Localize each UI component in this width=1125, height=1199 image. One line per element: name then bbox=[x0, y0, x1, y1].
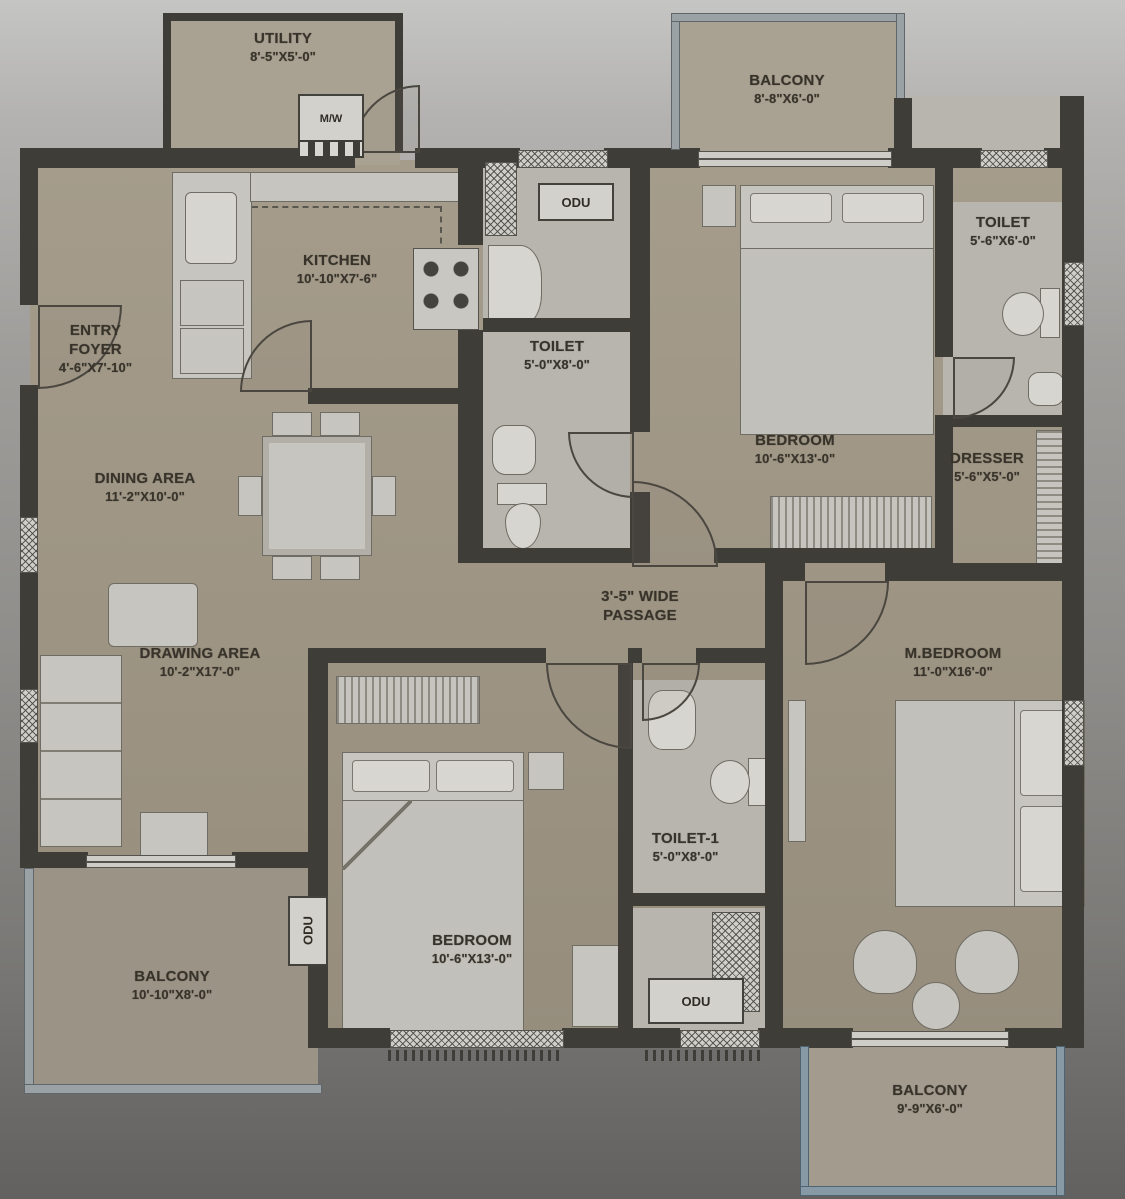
window-top-1 bbox=[518, 150, 608, 168]
room-name: BALCONY bbox=[687, 72, 887, 91]
odu-room-louver bbox=[485, 162, 517, 236]
mbed-blanket bbox=[895, 700, 1015, 907]
window-odu-bottom bbox=[680, 1030, 760, 1048]
room-dims: 10'-10"X8'-0" bbox=[72, 987, 272, 1003]
toilet-1-label: TOILET-1 5'-0"X8'-0" bbox=[608, 830, 763, 865]
kitchen-counter-top bbox=[250, 172, 460, 202]
toilet-1-wc-bowl bbox=[710, 760, 750, 804]
wall-passage-bottom-3 bbox=[696, 648, 783, 663]
mbed-wall-bottom-1 bbox=[783, 1028, 853, 1048]
window-top-2 bbox=[980, 150, 1048, 168]
wall-left-3 bbox=[20, 571, 38, 689]
wall-column-1 bbox=[630, 148, 650, 432]
passage-line1: 3'-5" WIDE bbox=[570, 588, 710, 607]
sliding-door-balcony-br bbox=[851, 1031, 1009, 1047]
armchair bbox=[108, 583, 198, 647]
wall-left-4 bbox=[20, 741, 38, 868]
window-right-2 bbox=[1064, 700, 1084, 766]
round-table bbox=[912, 982, 960, 1030]
toilet-top-right-label: TOILET 5'-6"X6'-0" bbox=[928, 214, 1078, 249]
dresser-label: DRESSER 5'-6"X5'-0" bbox=[912, 450, 1062, 485]
wash-counter bbox=[488, 245, 542, 327]
wall-top-3 bbox=[604, 148, 700, 168]
dining-chair-2 bbox=[320, 412, 360, 436]
microwave-label: M/W bbox=[320, 113, 343, 125]
window-bedroom-bottom bbox=[390, 1030, 564, 1048]
wall-odu-bottom-b2 bbox=[758, 1028, 783, 1048]
side-table-drawing bbox=[140, 812, 208, 858]
balcony-bottom-right-floor bbox=[802, 1046, 1056, 1188]
floor-plan: ODU M/W ODU ODU bbox=[0, 0, 1125, 1199]
room-name: TOILET-1 bbox=[608, 830, 763, 849]
wall-kitchen-right-top bbox=[458, 148, 483, 245]
dining-chair-1 bbox=[272, 412, 312, 436]
odu-label: ODU bbox=[682, 994, 711, 1009]
balcony-top-rail-right bbox=[896, 13, 905, 105]
grill-odu-bottom bbox=[645, 1050, 760, 1061]
room-dims: 8'-8"X6'-0" bbox=[687, 91, 887, 107]
accent-chair-1 bbox=[853, 930, 917, 994]
room-dims: 8'-5"X5'-0" bbox=[183, 49, 383, 65]
room-dims: 10'-6"X13'-0" bbox=[372, 951, 572, 967]
toilet-tr-basin bbox=[1028, 372, 1064, 406]
balcony-bl-rail-left bbox=[24, 868, 34, 1094]
wall-left-1 bbox=[20, 148, 38, 305]
odu-unit-top: ODU bbox=[538, 183, 614, 221]
m-bedroom-label: M.BEDROOM 11'-0"X16'-0" bbox=[853, 645, 1053, 680]
bedroom-top-wardrobe bbox=[770, 496, 932, 550]
dining-chair-4 bbox=[320, 556, 360, 580]
wall-balcony-bl-1 bbox=[20, 852, 88, 868]
balcony-top-rail-left bbox=[671, 13, 680, 150]
utility-wall-left bbox=[163, 13, 171, 153]
room-dims: 11'-0"X16'-0" bbox=[853, 664, 1053, 680]
sofa bbox=[40, 655, 122, 847]
passage-label: 3'-5" WIDE PASSAGE bbox=[570, 588, 710, 626]
kitchen-sink bbox=[185, 192, 237, 264]
accent-chair-2 bbox=[955, 930, 1019, 994]
wall-mbed-top-2 bbox=[885, 563, 1084, 581]
toilet-tr-wc-bowl bbox=[1002, 292, 1044, 336]
bed-top-pillow-2 bbox=[842, 193, 924, 223]
balcony-br-rail-left bbox=[800, 1046, 809, 1195]
counter-dash-line-h bbox=[252, 206, 440, 208]
room-name: TOILET bbox=[928, 214, 1078, 233]
wall-toilet1-odu-divider bbox=[618, 893, 783, 906]
utility-wall-top bbox=[163, 13, 403, 21]
room-name: UTILITY bbox=[183, 30, 383, 49]
kitchen-cabinet bbox=[180, 280, 244, 326]
odu-label: ODU bbox=[562, 195, 591, 210]
odu-unit-bottom: ODU bbox=[648, 978, 744, 1024]
drawing-label: DRAWING AREA 10'-2"X17'-0" bbox=[100, 645, 300, 680]
room-name: BALCONY bbox=[830, 1082, 1030, 1101]
window-right-1 bbox=[1064, 262, 1084, 326]
microwave-grill bbox=[298, 140, 364, 158]
dining-chair-6 bbox=[372, 476, 396, 516]
bedroom-bottom-label: BEDROOM 10'-6"X13'-0" bbox=[372, 932, 572, 967]
balcony-br-rail-right bbox=[1056, 1046, 1065, 1196]
ledge-right-wall bbox=[1060, 96, 1084, 154]
wall-odu-bottom-b1 bbox=[618, 1028, 680, 1048]
room-name: DRAWING AREA bbox=[100, 645, 300, 664]
wall-bedroom-bottom-b1 bbox=[328, 1028, 390, 1048]
wall-bedroomtop-right-2 bbox=[935, 415, 953, 563]
balcony-top-wall-block bbox=[894, 98, 912, 154]
room-dims: 5'-0"X8'-0" bbox=[487, 357, 627, 373]
room-name: BEDROOM bbox=[372, 932, 572, 951]
bed-bottom-pillow-2 bbox=[436, 760, 514, 792]
wall-odu-toilet-divider bbox=[483, 318, 630, 332]
wall-passage-bottom-2 bbox=[628, 648, 642, 663]
microwave-box: M/W bbox=[298, 94, 364, 144]
room-name: DRESSER bbox=[912, 450, 1062, 469]
wall-bedroom-bottom-left bbox=[308, 648, 328, 1048]
ledge-top-right bbox=[902, 96, 1062, 150]
bed-top-blanket bbox=[740, 248, 934, 435]
dining-chair-3 bbox=[272, 556, 312, 580]
wall-passage-top-2 bbox=[714, 548, 935, 563]
balcony-bottom-left-label: BALCONY 10'-10"X8'-0" bbox=[72, 968, 272, 1003]
utility-label: UTILITY 8'-5"X5'-0" bbox=[183, 30, 383, 65]
bed-bottom-pillow-1 bbox=[352, 760, 430, 792]
room-name: M.BEDROOM bbox=[853, 645, 1053, 664]
balcony-top-label: BALCONY 8'-8"X6'-0" bbox=[687, 72, 887, 107]
sliding-door-balcony-top bbox=[698, 151, 892, 167]
room-dims: 10'-10"X7'-6" bbox=[237, 271, 437, 287]
room-name: TOILET bbox=[487, 338, 627, 357]
room-dims: 10'-2"X17'-0" bbox=[100, 664, 300, 680]
mbed-tv-unit bbox=[788, 700, 806, 842]
room-dims: 10'-6"X13'-0" bbox=[695, 451, 895, 467]
grill-bedroom-bottom bbox=[388, 1050, 564, 1061]
bed-bottom-fold-line bbox=[342, 800, 412, 870]
passage-line2: PASSAGE bbox=[570, 607, 710, 626]
room-dims: 4'-6"X7'-10" bbox=[48, 360, 143, 376]
balcony-bl-rail-bottom bbox=[24, 1084, 322, 1094]
room-dims: 9'-9"X6'-0" bbox=[830, 1101, 1030, 1117]
mbed-wall-bottom-2 bbox=[1005, 1028, 1084, 1048]
wall-balcony-bl-2 bbox=[232, 852, 320, 868]
bed-top-pillow-1 bbox=[750, 193, 832, 223]
room-name: KITCHEN bbox=[237, 252, 437, 271]
balcony-top-rail-top bbox=[671, 13, 905, 22]
entry-foyer-label: ENTRY FOYER 4'-6"X7'-10" bbox=[48, 322, 143, 376]
kitchen-label: KITCHEN 10'-10"X7'-6" bbox=[237, 252, 437, 287]
odu-label: ODU bbox=[301, 917, 316, 946]
bedroom-bottom-wardrobe bbox=[336, 676, 480, 724]
wall-mbed-top-1 bbox=[783, 563, 805, 581]
room-name: ENTRY FOYER bbox=[48, 322, 143, 360]
room-dims: 5'-6"X5'-0" bbox=[912, 469, 1062, 485]
sliding-door-balcony-bl bbox=[86, 855, 236, 868]
wall-kitchen-bottom bbox=[308, 388, 460, 404]
window-left-1 bbox=[20, 517, 38, 573]
bed-top-side-table bbox=[702, 185, 736, 227]
room-name: BEDROOM bbox=[695, 432, 895, 451]
balcony-bottom-right-label: BALCONY 9'-9"X6'-0" bbox=[830, 1082, 1030, 1117]
wall-passage-bottom-1 bbox=[308, 648, 546, 663]
toilet-mid-wc-tank bbox=[497, 483, 547, 505]
room-dims: 11'-2"X10'-0" bbox=[45, 489, 245, 505]
bedroom-top-label: BEDROOM 10'-6"X13'-0" bbox=[695, 432, 895, 467]
room-dims: 5'-0"X8'-0" bbox=[608, 849, 763, 865]
wall-left-2 bbox=[20, 385, 38, 517]
dining-label: DINING AREA 11'-2"X10'-0" bbox=[45, 470, 245, 505]
balcony-br-rail-bottom bbox=[800, 1186, 1065, 1196]
dining-table bbox=[262, 436, 372, 556]
toilet-mid-label: TOILET 5'-0"X8'-0" bbox=[487, 338, 627, 373]
wall-mbed-left bbox=[765, 563, 783, 1028]
room-dims: 5'-6"X6'-0" bbox=[928, 233, 1078, 249]
wall-bedroomtop-right-1 bbox=[935, 148, 953, 357]
kitchen-cabinet-2 bbox=[180, 328, 244, 374]
room-name: DINING AREA bbox=[45, 470, 245, 489]
bed-bottom-side-table bbox=[528, 752, 564, 790]
wall-dining-toilet bbox=[458, 330, 483, 563]
room-name: BALCONY bbox=[72, 968, 272, 987]
odu-unit-side: ODU bbox=[288, 896, 328, 966]
wall-passage-top-1 bbox=[458, 548, 632, 563]
toilet-mid-basin bbox=[492, 425, 536, 475]
window-left-2 bbox=[20, 689, 38, 743]
